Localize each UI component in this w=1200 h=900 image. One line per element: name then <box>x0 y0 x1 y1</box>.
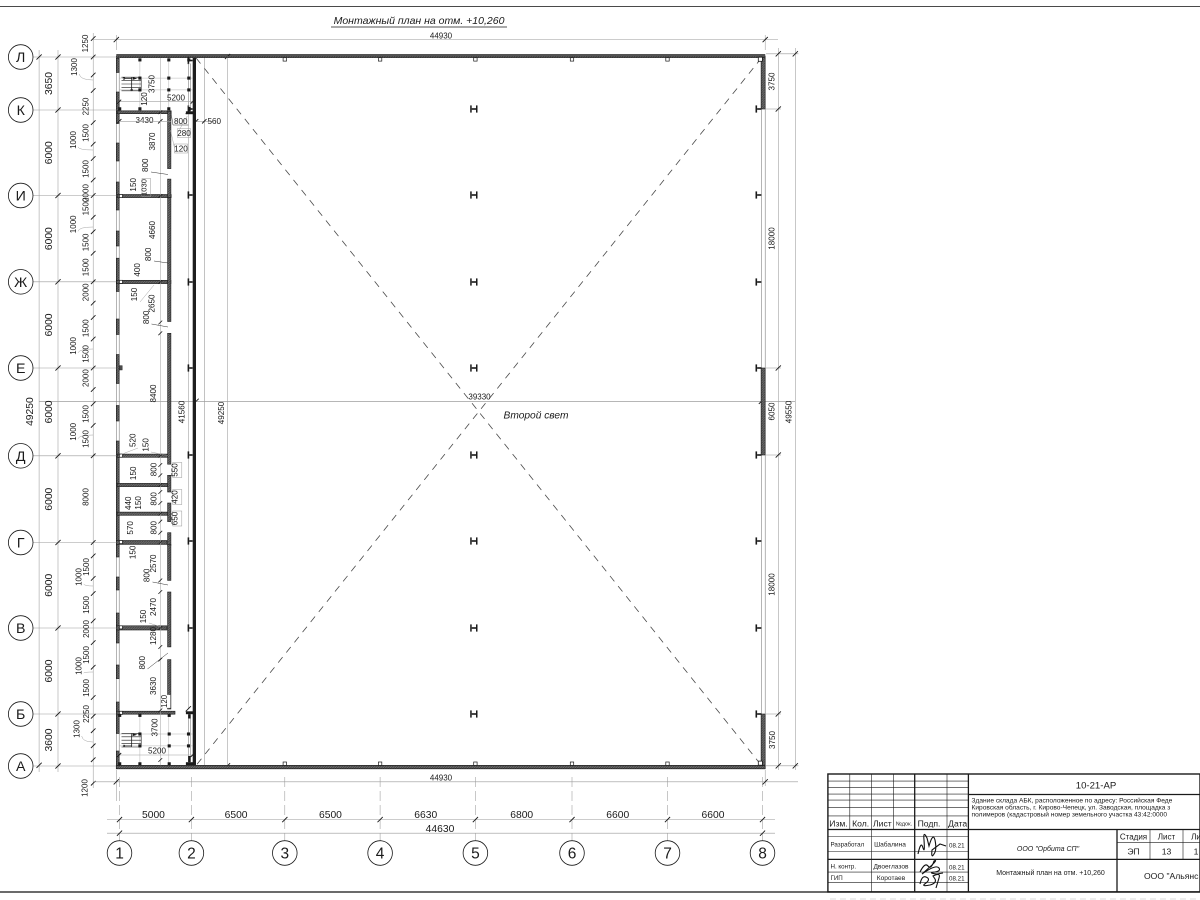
svg-text:2250: 2250 <box>81 97 90 115</box>
svg-text:6000: 6000 <box>44 487 55 510</box>
svg-text:1280: 1280 <box>149 627 158 646</box>
svg-text:49550: 49550 <box>784 400 793 423</box>
svg-text:2: 2 <box>187 846 196 863</box>
svg-text:1: 1 <box>115 846 124 863</box>
svg-text:800: 800 <box>142 310 151 324</box>
svg-text:18000: 18000 <box>767 573 776 596</box>
svg-text:Н. контр.: Н. контр. <box>831 864 857 871</box>
svg-text:Второй свет: Второй свет <box>504 411 569 422</box>
svg-text:4660: 4660 <box>148 221 157 240</box>
svg-text:2250: 2250 <box>82 705 91 723</box>
svg-text:1000: 1000 <box>69 215 78 233</box>
svg-text:Стадия: Стадия <box>1120 833 1147 842</box>
svg-text:8000: 8000 <box>81 488 90 506</box>
svg-text:2000: 2000 <box>82 620 91 638</box>
svg-text:150: 150 <box>134 496 143 510</box>
svg-text:44630: 44630 <box>426 824 455 835</box>
svg-text:41560: 41560 <box>178 400 187 423</box>
svg-text:280: 280 <box>177 129 191 138</box>
svg-text:1500: 1500 <box>82 679 91 697</box>
svg-text:550: 550 <box>171 463 180 477</box>
svg-text:7: 7 <box>663 846 672 863</box>
svg-text:А: А <box>16 759 26 775</box>
svg-text:ГИП: ГИП <box>831 875 843 882</box>
svg-text:Б: Б <box>16 707 25 723</box>
svg-text:1500: 1500 <box>81 124 90 142</box>
svg-text:1500: 1500 <box>81 160 90 178</box>
svg-text:8400: 8400 <box>149 384 158 403</box>
svg-text:3870: 3870 <box>148 132 157 151</box>
svg-text:2000: 2000 <box>81 283 90 301</box>
svg-text:18000: 18000 <box>767 227 776 250</box>
svg-text:6: 6 <box>568 846 577 863</box>
svg-text:ЭП: ЭП <box>1127 847 1139 857</box>
svg-text:Монтажный план на отм. +10,260: Монтажный план на отм. +10,260 <box>334 15 505 27</box>
svg-text:13: 13 <box>1162 847 1172 857</box>
svg-text:120: 120 <box>160 694 169 708</box>
svg-text:800: 800 <box>138 655 147 669</box>
svg-text:8: 8 <box>758 846 767 863</box>
svg-text:6000: 6000 <box>44 227 55 250</box>
svg-text:В: В <box>16 621 25 637</box>
svg-text:Дата: Дата <box>948 819 967 829</box>
svg-text:3: 3 <box>280 846 289 863</box>
svg-text:1000: 1000 <box>69 336 78 354</box>
svg-text:1000: 1000 <box>69 422 78 440</box>
svg-text:1000: 1000 <box>75 657 84 675</box>
svg-text:6630: 6630 <box>414 810 437 821</box>
svg-text:3700: 3700 <box>151 718 160 737</box>
svg-text:№док.: №док. <box>896 822 913 828</box>
svg-text:800: 800 <box>149 492 158 506</box>
svg-text:Монтажный план на отм. +10,260: Монтажный план на отм. +10,260 <box>996 869 1105 877</box>
svg-text:Г: Г <box>17 536 25 552</box>
svg-text:6000: 6000 <box>44 400 55 423</box>
svg-text:Двоеглазов: Двоеглазов <box>873 864 909 871</box>
svg-text:120: 120 <box>174 145 188 154</box>
svg-text:1500: 1500 <box>81 197 90 215</box>
svg-text:5: 5 <box>471 846 480 863</box>
svg-text:3600: 3600 <box>44 728 55 751</box>
svg-text:6600: 6600 <box>702 810 725 821</box>
svg-text:3750: 3750 <box>148 75 157 94</box>
svg-text:1500: 1500 <box>81 319 90 337</box>
svg-text:6500: 6500 <box>319 810 342 821</box>
svg-text:08.21: 08.21 <box>949 864 965 871</box>
svg-text:6800: 6800 <box>510 810 533 821</box>
svg-text:Разработал: Разработал <box>831 842 865 849</box>
svg-text:Коротаев: Коротаев <box>877 875 906 882</box>
svg-text:800: 800 <box>149 462 158 476</box>
svg-text:150: 150 <box>139 609 148 623</box>
svg-text:49250: 49250 <box>217 401 226 424</box>
svg-text:800: 800 <box>144 247 153 261</box>
svg-text:1300: 1300 <box>73 720 82 738</box>
svg-text:5000: 5000 <box>142 810 165 821</box>
svg-text:3430: 3430 <box>135 116 154 125</box>
svg-text:520: 520 <box>128 433 137 447</box>
svg-text:6000: 6000 <box>44 574 55 597</box>
svg-text:1500: 1500 <box>81 430 90 448</box>
svg-text:3750: 3750 <box>768 731 777 750</box>
svg-text:120: 120 <box>140 92 149 106</box>
svg-text:39330: 39330 <box>468 393 491 402</box>
svg-text:150: 150 <box>129 178 138 192</box>
svg-text:1250: 1250 <box>81 34 90 52</box>
svg-text:1: 1 <box>1194 847 1199 857</box>
svg-text:150: 150 <box>142 438 151 452</box>
svg-text:800: 800 <box>149 521 158 535</box>
svg-text:Е: Е <box>16 361 25 377</box>
svg-text:2470: 2470 <box>149 598 158 617</box>
svg-text:2000: 2000 <box>81 369 90 387</box>
svg-text:Подп.: Подп. <box>918 819 941 829</box>
svg-text:полимеров (кадастровый номер з: полимеров (кадастровый номер земельного … <box>972 811 1168 819</box>
svg-text:6500: 6500 <box>225 810 248 821</box>
svg-text:4: 4 <box>376 846 385 863</box>
svg-text:Шабалина: Шабалина <box>874 841 906 849</box>
svg-text:К: К <box>17 103 26 119</box>
svg-text:1500: 1500 <box>81 258 90 276</box>
svg-text:5200: 5200 <box>167 93 186 102</box>
svg-text:44930: 44930 <box>430 31 453 40</box>
svg-text:1000: 1000 <box>69 131 78 149</box>
svg-text:6000: 6000 <box>44 141 55 164</box>
svg-text:6050: 6050 <box>767 402 776 421</box>
svg-text:Лист: Лист <box>873 819 892 829</box>
svg-text:440: 440 <box>124 496 133 510</box>
svg-text:420: 420 <box>171 490 180 504</box>
svg-text:10-21-АР: 10-21-АР <box>1076 780 1117 791</box>
svg-text:1000: 1000 <box>75 568 84 586</box>
svg-text:3750: 3750 <box>767 72 776 91</box>
svg-text:1300: 1300 <box>70 58 79 76</box>
svg-text:800: 800 <box>143 568 152 582</box>
svg-text:6000: 6000 <box>44 313 55 336</box>
svg-text:2650: 2650 <box>148 294 157 313</box>
svg-text:Ж: Ж <box>14 275 27 291</box>
svg-text:Д: Д <box>16 449 26 465</box>
svg-text:800: 800 <box>141 158 150 172</box>
svg-text:ООО "Альянс: ООО "Альянс <box>1144 871 1199 881</box>
svg-text:1500: 1500 <box>81 233 90 251</box>
svg-text:44930: 44930 <box>430 774 453 783</box>
svg-text:1500: 1500 <box>82 596 91 614</box>
svg-text:И: И <box>16 189 26 205</box>
svg-text:1030: 1030 <box>139 179 148 196</box>
svg-text:150: 150 <box>130 287 139 301</box>
svg-text:Кировская область, г. Кирово-Ч: Кировская область, г. Кирово-Чепецк, ул.… <box>972 804 1171 812</box>
svg-text:Ли: Ли <box>1191 833 1200 842</box>
svg-text:1200: 1200 <box>81 779 90 797</box>
svg-text:49250: 49250 <box>25 397 36 426</box>
svg-text:150: 150 <box>129 466 138 480</box>
svg-text:Кол.: Кол. <box>852 819 869 829</box>
svg-text:400: 400 <box>133 263 142 277</box>
svg-text:08.21: 08.21 <box>949 875 965 882</box>
svg-text:08.21: 08.21 <box>949 842 965 849</box>
svg-text:1500: 1500 <box>81 344 90 362</box>
svg-text:3650: 3650 <box>44 72 55 95</box>
svg-text:3630: 3630 <box>149 677 158 696</box>
svg-text:Изм.: Изм. <box>829 819 847 829</box>
svg-text:150: 150 <box>128 545 137 559</box>
svg-text:6600: 6600 <box>606 810 629 821</box>
svg-text:Здание склада АБК, расположенн: Здание склада АБК, расположенное по адре… <box>972 797 1173 805</box>
svg-text:Л: Л <box>16 50 25 66</box>
svg-text:Лист: Лист <box>1158 833 1176 842</box>
svg-text:5200: 5200 <box>148 747 167 756</box>
svg-text:650: 650 <box>171 511 180 525</box>
svg-text:6000: 6000 <box>44 659 55 682</box>
svg-text:ООО "Орбита СП": ООО "Орбита СП" <box>1017 845 1080 853</box>
svg-text:560: 560 <box>208 117 222 126</box>
svg-text:570: 570 <box>126 521 135 535</box>
svg-text:1500: 1500 <box>81 405 90 423</box>
